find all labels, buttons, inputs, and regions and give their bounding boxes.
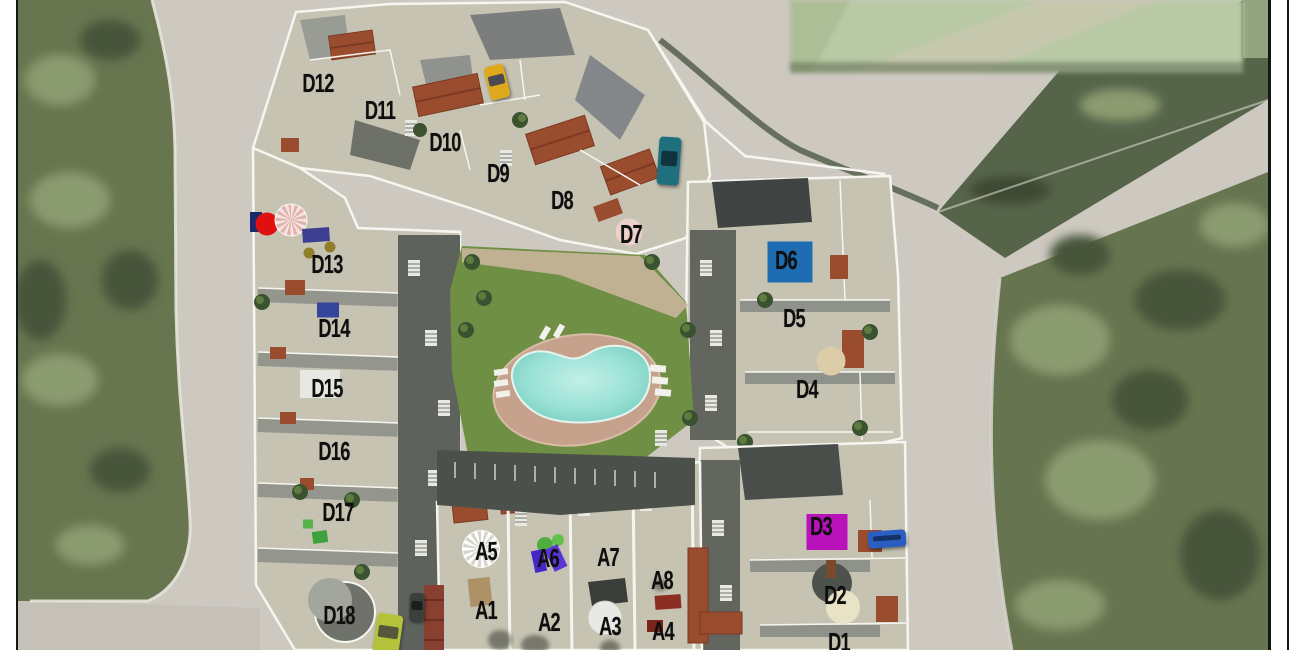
dark-car-windshield <box>411 601 423 610</box>
tan-parasol-d4 <box>817 347 846 376</box>
unit-label-a5: A5 <box>475 538 497 564</box>
left-border-line <box>16 0 18 650</box>
teal-car <box>656 136 681 185</box>
unit-label-a2: A2 <box>538 609 560 635</box>
unit-label-a4: A4 <box>652 618 674 644</box>
unit-label-d10: D10 <box>429 129 460 155</box>
unit-label-d9: D9 <box>487 160 509 186</box>
unit-label-a6: A6 <box>537 545 559 571</box>
unit-label-d12: D12 <box>302 70 333 96</box>
unit-label-d16: D16 <box>318 438 349 464</box>
unit-label-d1: D1 <box>828 629 850 650</box>
lime-car <box>372 612 403 650</box>
unit-label-d13: D13 <box>311 251 342 277</box>
green-lounge-d17 <box>312 530 329 544</box>
unit-label-d17: D17 <box>322 499 353 525</box>
unit-label-d7: D7 <box>620 221 642 247</box>
left-margin <box>0 0 17 650</box>
green-chair-d17 <box>303 520 313 529</box>
unit-label-d8: D8 <box>551 187 573 213</box>
unit-label-d4: D4 <box>796 376 818 402</box>
lime-car-windshield <box>378 625 399 640</box>
unit-label-a3: A3 <box>599 613 621 639</box>
unit-label-d6: D6 <box>775 247 797 273</box>
dark-car <box>409 593 425 622</box>
unit-label-a1: A1 <box>475 597 497 623</box>
unit-label-d2: D2 <box>824 582 846 608</box>
unit-label-d3: D3 <box>810 513 832 539</box>
yellow-car-windshield <box>488 74 505 88</box>
unit-label-d5: D5 <box>783 305 805 331</box>
right-edge-line <box>1287 0 1289 650</box>
unit-label-d14: D14 <box>318 315 349 341</box>
teal-car-windshield <box>660 151 678 167</box>
unit-label-a8: A8 <box>651 567 673 593</box>
unit-label-a7: A7 <box>597 544 619 570</box>
annotation-overlay: D1D2D3D4D5D6D7D8D9D10D11D12D13D14D15D16D… <box>0 0 1291 650</box>
navy-pergola <box>302 227 330 243</box>
blue-truck <box>867 529 906 549</box>
site-plan-page: D1D2D3D4D5D6D7D8D9D10D11D12D13D14D15D16D… <box>0 0 1291 650</box>
right-border-line <box>1268 0 1271 650</box>
unit-label-d18: D18 <box>323 602 354 628</box>
blue-truck-windshield <box>872 535 901 542</box>
unit-label-d15: D15 <box>311 375 342 401</box>
unit-label-d11: D11 <box>365 97 395 123</box>
yellow-car <box>483 63 511 101</box>
red-table-a4 <box>655 594 682 610</box>
